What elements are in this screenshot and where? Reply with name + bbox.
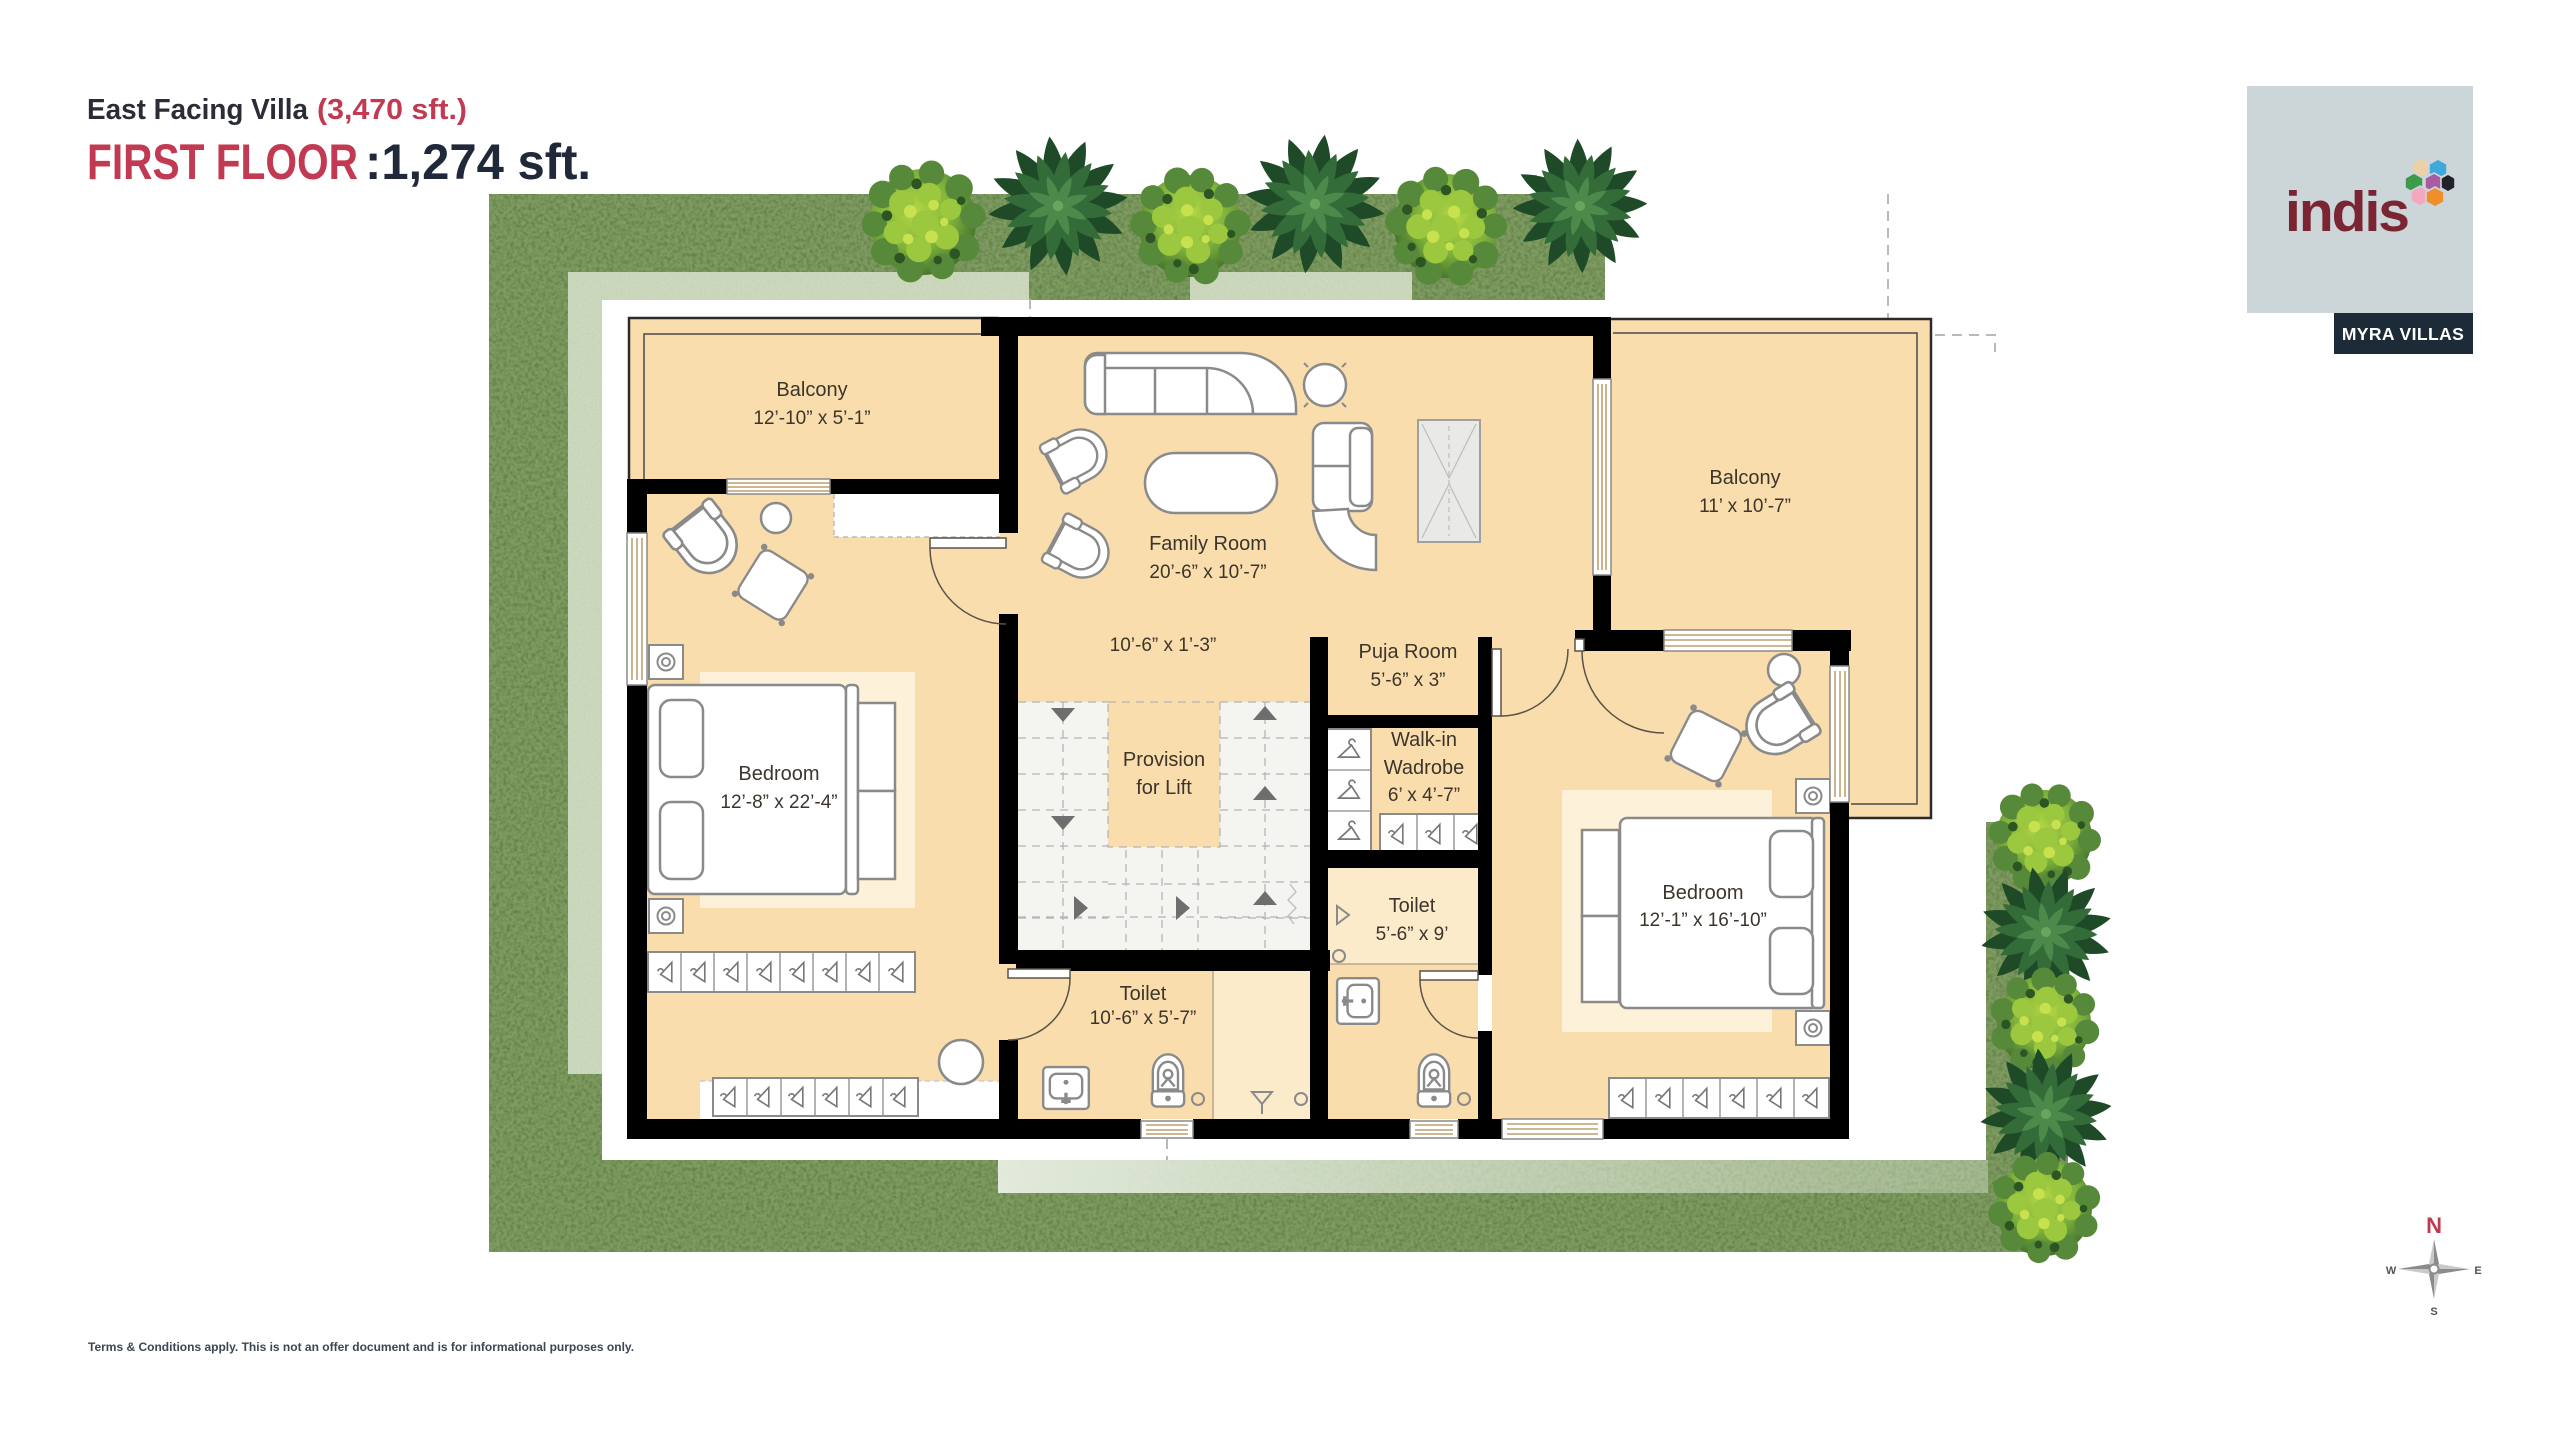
svg-text:12’-10” x 5’-1”: 12’-10” x 5’-1” xyxy=(753,408,870,429)
svg-text:10’-6” x 5’-7”: 10’-6” x 5’-7” xyxy=(1090,1008,1197,1029)
svg-text:20’-6” x 10’-7”: 20’-6” x 10’-7” xyxy=(1149,562,1266,583)
svg-text:for Lift: for Lift xyxy=(1136,777,1192,799)
svg-text:indis: indis xyxy=(2285,180,2408,244)
svg-text:12’-8” x 22’-4”: 12’-8” x 22’-4” xyxy=(720,792,837,813)
svg-text:Balcony: Balcony xyxy=(1709,467,1780,489)
svg-text:5’-6” x 9’: 5’-6” x 9’ xyxy=(1376,924,1449,945)
svg-text:5’-6” x 3”: 5’-6” x 3” xyxy=(1371,670,1446,691)
svg-text:W: W xyxy=(2386,1265,2397,1277)
svg-text:Walk-in: Walk-in xyxy=(1391,729,1457,751)
svg-text:Family Room: Family Room xyxy=(1149,533,1267,555)
svg-text:FIRST FLOOR:1,274 sft.: FIRST FLOOR:1,274 sft. xyxy=(87,134,591,190)
svg-text:12’-1” x 16’-10”: 12’-1” x 16’-10” xyxy=(1639,910,1767,931)
svg-text:N: N xyxy=(2426,1213,2442,1238)
svg-text:Bedroom: Bedroom xyxy=(1662,882,1743,904)
svg-text:Balcony: Balcony xyxy=(776,379,847,401)
svg-text:Wadrobe: Wadrobe xyxy=(1384,757,1464,779)
svg-text:Toilet: Toilet xyxy=(1389,895,1436,917)
svg-text:S: S xyxy=(2430,1306,2437,1318)
svg-text:10’-6” x 1’-3”: 10’-6” x 1’-3” xyxy=(1110,635,1217,656)
svg-text:Terms & Conditions apply. This: Terms & Conditions apply. This is not an… xyxy=(88,1340,634,1354)
svg-text:Provision: Provision xyxy=(1123,749,1205,771)
svg-text:E: E xyxy=(2474,1265,2481,1277)
svg-text:MYRA VILLAS: MYRA VILLAS xyxy=(2342,324,2464,344)
svg-text:6’ x 4’-7”: 6’ x 4’-7” xyxy=(1388,785,1460,806)
svg-text:East Facing Villa(3,470 sft.): East Facing Villa(3,470 sft.) xyxy=(87,94,467,126)
svg-text:Toilet: Toilet xyxy=(1120,983,1167,1005)
svg-text:Bedroom: Bedroom xyxy=(738,763,819,785)
svg-text:Puja Room: Puja Room xyxy=(1359,641,1458,663)
svg-text:11’ x 10’-7”: 11’ x 10’-7” xyxy=(1699,496,1791,517)
